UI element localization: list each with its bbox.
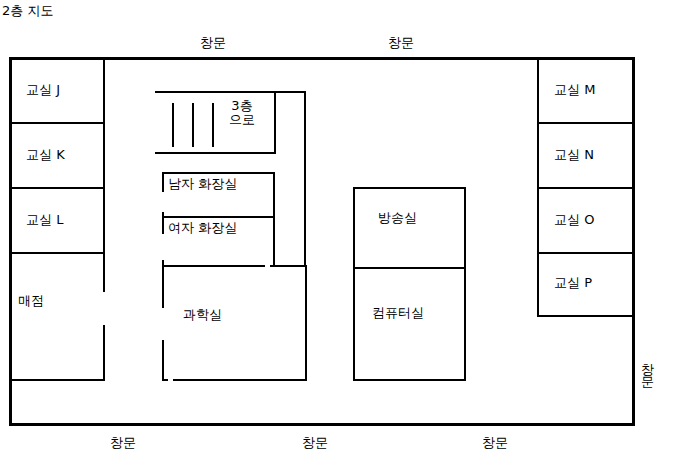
right-divider-op bbox=[537, 252, 635, 254]
room-label-store: 매점 bbox=[18, 294, 44, 308]
room-label-classroom-k: 교실 K bbox=[26, 148, 65, 162]
left-divider-jk bbox=[9, 122, 105, 124]
womens-restroom-left-stub bbox=[162, 212, 164, 234]
left-corridor-wall-lower bbox=[103, 325, 105, 380]
restroom-right-wall bbox=[273, 172, 275, 267]
broadcast-block-left-wall bbox=[353, 187, 355, 381]
hall-inner-wall bbox=[304, 91, 306, 267]
window-label-bottom-3: 창문 bbox=[482, 436, 508, 450]
science-top-wall-b bbox=[270, 265, 306, 267]
mens-restroom-left-stub bbox=[162, 172, 164, 192]
mens-restroom-top-wall bbox=[162, 172, 275, 174]
room-label-computer-room: 컴퓨터실 bbox=[372, 306, 424, 320]
science-left-wall-lower bbox=[162, 340, 164, 381]
store-bottom-wall bbox=[9, 379, 105, 381]
broadcast-block-right-wall bbox=[464, 187, 466, 381]
left-corridor-wall-upper bbox=[103, 57, 105, 292]
room-label-classroom-o: 교실 O bbox=[554, 213, 594, 227]
room-label-classroom-m: 교실 M bbox=[554, 83, 595, 97]
stair-step-3 bbox=[212, 103, 214, 147]
window-label-top-1: 창문 bbox=[200, 36, 226, 50]
science-left-wall-upper bbox=[162, 260, 164, 308]
window-label-bottom-2: 창문 bbox=[302, 436, 328, 450]
window-label-bottom-1: 창문 bbox=[110, 436, 136, 450]
room-label-classroom-n: 교실 N bbox=[554, 148, 594, 162]
room-label-womens-restroom: 여자 화장실 bbox=[168, 221, 237, 235]
stair-step-2 bbox=[192, 103, 194, 147]
room-label-mens-restroom: 남자 화장실 bbox=[168, 177, 237, 191]
science-bottom-wall-a bbox=[162, 379, 168, 381]
restroom-divider-wall bbox=[162, 216, 275, 218]
broadcast-computer-divider bbox=[353, 267, 466, 269]
science-top-wall-a bbox=[162, 265, 265, 267]
room-label-classroom-l: 교실 L bbox=[26, 213, 63, 227]
room-label-science-room: 과학실 bbox=[183, 308, 222, 322]
stairs-label-line1: 3층 bbox=[225, 99, 259, 113]
room-label-classroom-j: 교실 J bbox=[26, 83, 60, 97]
stairs-bottom-wall bbox=[155, 152, 276, 154]
computer-bottom-wall bbox=[353, 379, 466, 381]
classroom-p-bottom-wall bbox=[537, 315, 635, 317]
room-label-broadcast-room: 방송실 bbox=[378, 211, 417, 225]
broadcast-top-wall bbox=[353, 187, 466, 189]
page-title: 2층 지도 bbox=[2, 4, 53, 18]
stairs-label: 3층 으로 bbox=[225, 99, 259, 127]
outer-wall-bottom bbox=[9, 423, 635, 426]
window-label-right: 창문 bbox=[639, 354, 655, 380]
left-divider-l-store bbox=[9, 252, 105, 254]
stairs-right-wall bbox=[274, 91, 276, 154]
floor-plan-canvas: 2층 지도 창문 창문 창문 창문 창문 창문 교실 J 교실 bbox=[0, 0, 678, 471]
science-right-wall bbox=[305, 265, 307, 381]
stairs-top-wall bbox=[155, 91, 306, 93]
window-label-top-2: 창문 bbox=[388, 36, 414, 50]
outer-wall-right bbox=[632, 57, 635, 426]
room-label-classroom-p: 교실 P bbox=[554, 276, 592, 290]
stair-step-1 bbox=[172, 103, 174, 147]
outer-wall-left bbox=[9, 57, 12, 426]
left-divider-kl bbox=[9, 187, 105, 189]
science-bottom-wall-b bbox=[173, 379, 307, 381]
right-divider-no bbox=[537, 187, 635, 189]
stairs-label-line2: 으로 bbox=[225, 113, 259, 127]
right-divider-mn bbox=[537, 122, 635, 124]
